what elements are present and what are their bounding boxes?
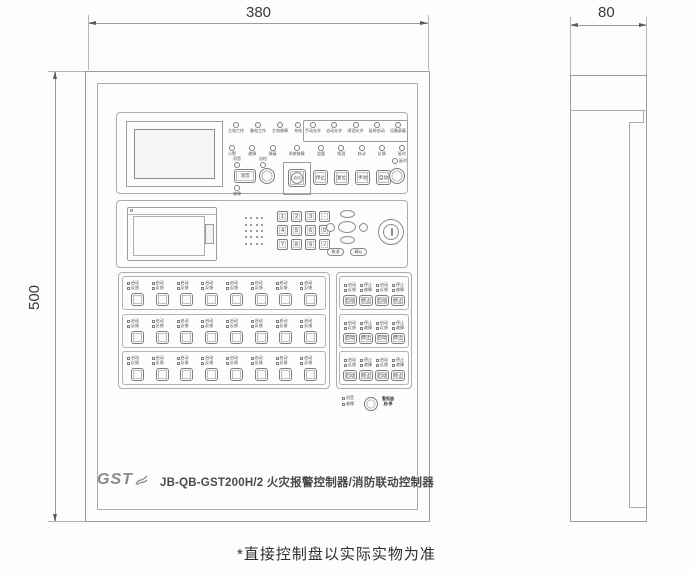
multiline-led	[344, 364, 347, 367]
zone-led	[127, 287, 130, 290]
status-indicator: 反馈	[378, 145, 386, 156]
dimension-line-500	[55, 71, 56, 522]
zone-led	[226, 357, 229, 360]
multiline-led-label: 故障	[396, 326, 404, 330]
cabinet-side-outline	[570, 75, 647, 522]
direct-control-button	[230, 331, 243, 344]
zone-led	[177, 287, 180, 290]
zone-led-row: 反馈	[251, 324, 263, 329]
direct-control-group: 启动反馈	[125, 281, 150, 306]
zone-led-row: 反馈	[177, 324, 189, 329]
zone-led	[251, 325, 254, 328]
multiline-led	[360, 364, 363, 367]
zone-led-row: 反馈	[300, 361, 312, 366]
zone-led-label: 反馈	[255, 324, 263, 328]
zone-led	[276, 287, 279, 290]
zone-led-row: 反馈	[276, 361, 288, 366]
multiline-control-row: 启动反馈启动停止故障停止启动反馈启动停止故障停止	[339, 351, 409, 385]
direct-control-button	[180, 293, 193, 306]
zone-led	[127, 325, 130, 328]
zone-led	[152, 282, 155, 285]
zone-led	[251, 362, 254, 365]
zone-led-row: 反馈	[201, 324, 213, 329]
zone-led-row: 反馈	[177, 361, 189, 366]
zone-led	[152, 325, 155, 328]
zone-led	[201, 362, 204, 365]
mute-led	[234, 162, 240, 168]
status-indicator: 喷洒	[337, 145, 345, 156]
direct-control-button	[131, 368, 144, 381]
multiline-control-group: 启动反馈启动	[342, 321, 358, 344]
status-indicator-label: 故障	[248, 152, 256, 156]
arrowhead-left	[88, 21, 96, 25]
zone-led-label: 反馈	[280, 286, 288, 290]
power-indicator: 主电工作	[228, 122, 244, 133]
multiline-control-group: 启动反馈启动	[342, 283, 358, 306]
mute-led-bottom: 故障	[233, 185, 241, 196]
keypad-key: 2	[291, 211, 302, 222]
multiline-led-label: 故障	[396, 288, 404, 292]
gst-logo-swoosh-icon	[135, 475, 148, 486]
zone-led-row: 反馈	[276, 286, 288, 291]
multiline-led	[344, 359, 347, 362]
multiline-led-row: 反馈	[376, 326, 388, 331]
arrowhead-left	[570, 23, 578, 27]
multiline-button: 启动	[375, 370, 389, 381]
start-button: 启动	[288, 169, 306, 187]
confirm-button: 确认	[350, 248, 367, 256]
zone-led	[251, 287, 254, 290]
multiline-led-row: 反馈	[344, 288, 356, 293]
extension-line	[48, 521, 85, 522]
zone-led	[226, 362, 229, 365]
direct-control-button	[156, 331, 169, 344]
sounder-fault-led	[342, 403, 345, 406]
dimension-line-380	[88, 23, 428, 24]
direct-control-button	[255, 293, 268, 306]
permission-indicator: 手动允许	[305, 122, 321, 133]
side-door-step-top	[629, 122, 644, 123]
start-button-emblem: 启动	[291, 172, 303, 184]
lcd-screen	[134, 129, 215, 179]
direct-control-button	[180, 331, 193, 344]
multiline-led	[376, 364, 379, 367]
zone-led-label: 反馈	[131, 361, 139, 365]
direct-control-button	[230, 293, 243, 306]
side-door-edge	[629, 122, 630, 507]
dimension-line-80	[570, 25, 647, 26]
multiline-button: 停止	[391, 295, 405, 306]
direct-control-group: 启动反馈	[150, 319, 175, 344]
zone-led-row: 反馈	[251, 361, 263, 366]
zone-led-label: 反馈	[131, 324, 139, 328]
arrowhead-right	[420, 21, 428, 25]
zone-led	[152, 320, 155, 323]
mute-button: 消音	[234, 169, 256, 183]
direct-control-row: 启动反馈启动反馈启动反馈启动反馈启动反馈启动反馈启动反馈启动反馈	[122, 276, 326, 310]
direct-control-group: 启动反馈	[274, 281, 299, 306]
dimension-front-width: 380	[246, 4, 271, 21]
keypad-key: 7	[277, 239, 288, 250]
direct-control-button	[205, 331, 218, 344]
multiline-button: 启动	[375, 333, 389, 344]
zone-led-row: 反馈	[152, 361, 164, 366]
multiline-led-label: 反馈	[348, 288, 356, 292]
multiline-button: 停止	[391, 333, 405, 344]
multiline-led	[360, 289, 363, 292]
direct-control-button	[131, 293, 144, 306]
zone-led	[276, 282, 279, 285]
arrowhead-up	[53, 71, 57, 79]
multiline-led	[360, 359, 363, 362]
status-indicator-label: 启动	[358, 152, 366, 156]
status-indicator-label: 喷洒	[337, 152, 345, 156]
zone-led	[201, 320, 204, 323]
permission-indicator: 自动允许	[326, 122, 342, 133]
sounder-mute-led	[342, 397, 345, 400]
zone-led-label: 反馈	[156, 361, 164, 365]
direct-control-group: 启动反馈	[199, 356, 224, 381]
zone-led	[300, 287, 303, 290]
multiline-control-rows: 启动反馈启动停止故障停止启动反馈启动停止故障停止启动反馈启动停止故障停止启动反馈…	[339, 276, 409, 385]
keyhole-icon	[391, 228, 393, 236]
function-button: 复位	[334, 170, 349, 185]
multiline-led-row: 故障	[360, 326, 372, 331]
direct-control-group: 启动反馈	[175, 281, 200, 306]
zone-led	[226, 282, 229, 285]
multiline-button: 停止	[359, 295, 373, 306]
zone-led	[276, 325, 279, 328]
multiline-led-label: 反馈	[380, 288, 388, 292]
permission-indicator-label: 喷洒允许	[348, 129, 364, 133]
power-indicator: 充电	[294, 122, 302, 133]
keypad-key: -	[319, 211, 330, 222]
power-indicator-row: 主电工作备电工作主电故障充电	[228, 122, 302, 133]
status-indicator-label: 系统故障	[289, 152, 305, 156]
multiline-led	[392, 327, 395, 330]
multiline-led-row: 故障	[360, 363, 372, 368]
zone-led-row: 反馈	[201, 361, 213, 366]
status-indicator: 屏蔽	[269, 145, 277, 156]
power-indicator-label: 主电工作	[228, 129, 244, 133]
numeric-keypad: 123-4560789√	[277, 211, 335, 253]
multiline-led-label: 故障	[364, 363, 372, 367]
zone-led-row: 反馈	[226, 286, 238, 291]
zone-led	[226, 320, 229, 323]
power-indicator-label: 主电故障	[272, 129, 288, 133]
technical-drawing-canvas: 380 500 80 主电工作备电工作主电故障充电 手动允许自动允许喷洒允许延时…	[0, 0, 693, 572]
zone-led-row: 反馈	[226, 324, 238, 329]
multiline-button: 启动	[343, 295, 357, 306]
permission-indicator-label: 自动允许	[326, 129, 342, 133]
direct-control-group: 启动反馈	[125, 319, 150, 344]
direct-control-group: 启动反馈	[199, 319, 224, 344]
direct-control-button	[279, 331, 292, 344]
zone-led-label: 反馈	[280, 324, 288, 328]
zone-led-label: 反馈	[181, 286, 189, 290]
power-indicator-label: 备电工作	[250, 129, 266, 133]
extension-line	[570, 17, 571, 75]
power-indicator: 备电工作	[250, 122, 266, 133]
side-top-seam	[570, 110, 647, 111]
multiline-led	[392, 284, 395, 287]
printer-window	[133, 216, 205, 256]
zone-led	[300, 362, 303, 365]
zone-led	[127, 357, 130, 360]
multiline-led-row: 反馈	[344, 326, 356, 331]
status-indicator: 火警	[228, 145, 236, 156]
gst-logo: GST	[97, 471, 148, 489]
self-test-button	[259, 168, 275, 184]
zone-led	[201, 287, 204, 290]
zone-led-label: 反馈	[181, 324, 189, 328]
direct-control-group: 启动反馈	[298, 281, 323, 306]
multiline-led	[376, 327, 379, 330]
sounder-led-stack: 消音 故障	[342, 396, 354, 407]
multiline-led-label: 反馈	[348, 363, 356, 367]
multiline-led	[392, 289, 395, 292]
direct-control-group: 启动反馈	[224, 319, 249, 344]
multiline-led-label: 反馈	[348, 326, 356, 330]
direct-control-group: 启动反馈	[150, 281, 175, 306]
multiline-led	[360, 284, 363, 287]
multiline-button: 停止	[359, 370, 373, 381]
multiline-led-row: 故障	[360, 288, 372, 293]
multiline-button: 启动	[375, 295, 389, 306]
zone-led-label: 反馈	[205, 286, 213, 290]
mute-led-top: 消音	[233, 157, 241, 168]
multiline-led-label: 反馈	[380, 363, 388, 367]
zone-led	[300, 325, 303, 328]
dimension-front-height: 500	[26, 285, 43, 310]
printer-screw	[130, 209, 133, 212]
zone-led-label: 反馈	[181, 361, 189, 365]
zone-led	[276, 320, 279, 323]
zone-led-row: 反馈	[226, 361, 238, 366]
zone-led	[251, 357, 254, 360]
zone-led	[127, 320, 130, 323]
permission-indicator-label: 设备屏蔽	[390, 129, 406, 133]
zone-led-label: 反馈	[230, 286, 238, 290]
extension-line	[428, 15, 429, 70]
zone-led	[226, 287, 229, 290]
zone-led-row: 反馈	[127, 286, 139, 291]
zone-led-label: 反馈	[304, 361, 312, 365]
keypad-key: 6	[305, 225, 316, 236]
speaker-grille	[243, 215, 265, 247]
printer-latch	[205, 224, 214, 244]
multiline-led-row: 反馈	[376, 288, 388, 293]
multiline-button: 停止	[391, 370, 405, 381]
extension-line	[88, 15, 89, 70]
power-indicator-label: 充电	[294, 129, 302, 133]
multiline-led	[376, 359, 379, 362]
zone-led	[251, 320, 254, 323]
zone-led-row: 反馈	[300, 286, 312, 291]
direct-control-group: 启动反馈	[274, 356, 299, 381]
status-indicator-label: 反馈	[378, 152, 386, 156]
zone-led-row: 反馈	[251, 286, 263, 291]
zone-led-row: 反馈	[152, 324, 164, 329]
direct-control-button	[279, 368, 292, 381]
zone-led-row: 反馈	[152, 286, 164, 291]
zone-led	[152, 362, 155, 365]
extension-line	[48, 71, 85, 72]
permission-indicator-row: 手动允许自动允许喷洒允许延时启动设备屏蔽	[305, 122, 406, 133]
printer-paper-slot	[128, 214, 216, 215]
keypad-key: 3	[305, 211, 316, 222]
zone-led	[127, 282, 130, 285]
multiline-led-row: 反馈	[376, 363, 388, 368]
multiline-led	[360, 327, 363, 330]
direct-control-button	[131, 331, 144, 344]
multiline-led-row: 故障	[392, 363, 404, 368]
multiline-led	[344, 327, 347, 330]
zone-led-row: 反馈	[300, 324, 312, 329]
direct-control-group: 启动反馈	[224, 356, 249, 381]
status-indicator: 系统故障	[289, 145, 305, 156]
direct-control-button	[255, 331, 268, 344]
direct-control-button	[205, 368, 218, 381]
direct-control-button	[180, 368, 193, 381]
direct-control-group: 启动反馈	[224, 281, 249, 306]
multiline-control-row: 启动反馈启动停止故障停止启动反馈启动停止故障停止	[339, 276, 409, 310]
multiline-led-row: 故障	[392, 288, 404, 293]
arrow-down-key	[340, 236, 355, 244]
multiline-led-label: 反馈	[380, 326, 388, 330]
key-switch	[383, 224, 399, 240]
status-indicator-label: 监管	[317, 152, 325, 156]
multiline-led-label: 故障	[364, 288, 372, 292]
multiline-led	[344, 322, 347, 325]
side-door-step-bottom	[629, 507, 646, 508]
zone-led	[177, 320, 180, 323]
footnote-caption: *直接控制盘以实际实物为准	[237, 543, 436, 564]
multiline-led	[376, 284, 379, 287]
multiline-control-group: 启动反馈启动	[374, 358, 390, 381]
zone-led-label: 反馈	[205, 324, 213, 328]
zone-led-row: 反馈	[177, 286, 189, 291]
dimension-side-depth: 80	[598, 4, 615, 21]
direct-control-button	[205, 293, 218, 306]
arrow-up-key	[340, 210, 355, 218]
zone-led	[300, 357, 303, 360]
zone-led	[276, 362, 279, 365]
multiline-control-row: 启动反馈启动停止故障停止启动反馈启动停止故障停止	[339, 314, 409, 348]
multiline-control-group: 启动反馈启动	[342, 358, 358, 381]
function-button-row: 停止复位手动自动	[313, 170, 396, 185]
status-indicator: 监管	[317, 145, 325, 156]
direct-control-group: 启动反馈	[175, 319, 200, 344]
zone-led	[152, 357, 155, 360]
direct-control-button	[156, 293, 169, 306]
direct-control-button	[304, 331, 317, 344]
arrow-right-key	[359, 223, 368, 232]
multiline-control-group: 停止故障停止	[390, 283, 406, 306]
zone-led	[300, 282, 303, 285]
model-title: JB-QB-GST200H/2 火灾报警控制器/消防联动控制器	[160, 474, 418, 490]
permission-indicator-label: 延时启动	[369, 129, 385, 133]
gst-logo-text: GST	[97, 471, 133, 489]
zone-led-label: 反馈	[304, 286, 312, 290]
direct-control-group: 启动反馈	[175, 356, 200, 381]
permission-indicator: 设备屏蔽	[390, 122, 406, 133]
zone-led-label: 反馈	[255, 286, 263, 290]
multiline-button: 启动	[343, 370, 357, 381]
sounder-label-block: 警报器 启/停	[382, 397, 394, 407]
direct-control-group: 启动反馈	[298, 356, 323, 381]
zone-led-label: 反馈	[304, 324, 312, 328]
multiline-led	[392, 364, 395, 367]
arrow-left-key	[326, 223, 335, 232]
multiline-led	[376, 289, 379, 292]
self-test-led: 自检	[259, 157, 267, 168]
direct-control-group: 启动反馈	[249, 356, 274, 381]
function-button: 手动	[355, 170, 370, 185]
zone-led	[201, 325, 204, 328]
direct-control-button	[255, 368, 268, 381]
direct-control-group: 启动反馈	[249, 319, 274, 344]
multiline-led	[376, 322, 379, 325]
delay-button	[389, 168, 405, 184]
zone-led-row: 反馈	[201, 286, 213, 291]
status-indicator-row: 火警故障屏蔽系统故障监管喷洒启动反馈延时	[228, 145, 406, 156]
direct-control-group: 启动反馈	[125, 356, 150, 381]
zone-led-label: 反馈	[280, 361, 288, 365]
multiline-control-group: 启动反馈启动	[374, 321, 390, 344]
zone-led-label: 反馈	[131, 286, 139, 290]
extension-line	[646, 17, 647, 75]
permission-indicator: 延时启动	[369, 122, 385, 133]
zone-led	[177, 282, 180, 285]
zone-led	[300, 320, 303, 323]
direct-control-group: 启动反馈	[249, 281, 274, 306]
multiline-led-row: 反馈	[344, 363, 356, 368]
multiline-button: 停止	[359, 333, 373, 344]
permission-indicator: 喷洒允许	[348, 122, 364, 133]
zone-led-row: 反馈	[127, 324, 139, 329]
zone-led	[226, 325, 229, 328]
multiline-led-label: 故障	[396, 363, 404, 367]
direct-control-button	[304, 368, 317, 381]
multiline-control-group: 停止故障停止	[358, 358, 374, 381]
zone-led	[201, 282, 204, 285]
direct-control-rows: 启动反馈启动反馈启动反馈启动反馈启动反馈启动反馈启动反馈启动反馈启动反馈启动反馈…	[122, 276, 326, 385]
multiline-control-group: 停止故障停止	[390, 321, 406, 344]
multiline-led	[360, 322, 363, 325]
zone-led	[177, 325, 180, 328]
zone-led	[152, 287, 155, 290]
zone-led	[201, 357, 204, 360]
zone-led-row: 反馈	[276, 324, 288, 329]
zone-led	[177, 357, 180, 360]
keypad-key: 8	[291, 239, 302, 250]
direct-control-row: 启动反馈启动反馈启动反馈启动反馈启动反馈启动反馈启动反馈启动反馈	[122, 351, 326, 385]
zone-led-label: 反馈	[230, 361, 238, 365]
multiline-led	[344, 284, 347, 287]
status-indicator: 延时	[398, 145, 406, 156]
cancel-button: 取消	[327, 248, 344, 256]
zone-led	[251, 282, 254, 285]
zone-led-label: 反馈	[156, 286, 164, 290]
zone-led	[276, 357, 279, 360]
permission-indicator-label: 手动允许	[305, 129, 321, 133]
keypad-key: 9	[305, 239, 316, 250]
zone-led-label: 反馈	[156, 324, 164, 328]
status-indicator-label: 延时	[398, 152, 406, 156]
zone-led-row: 反馈	[127, 361, 139, 366]
keypad-key: 1	[277, 211, 288, 222]
